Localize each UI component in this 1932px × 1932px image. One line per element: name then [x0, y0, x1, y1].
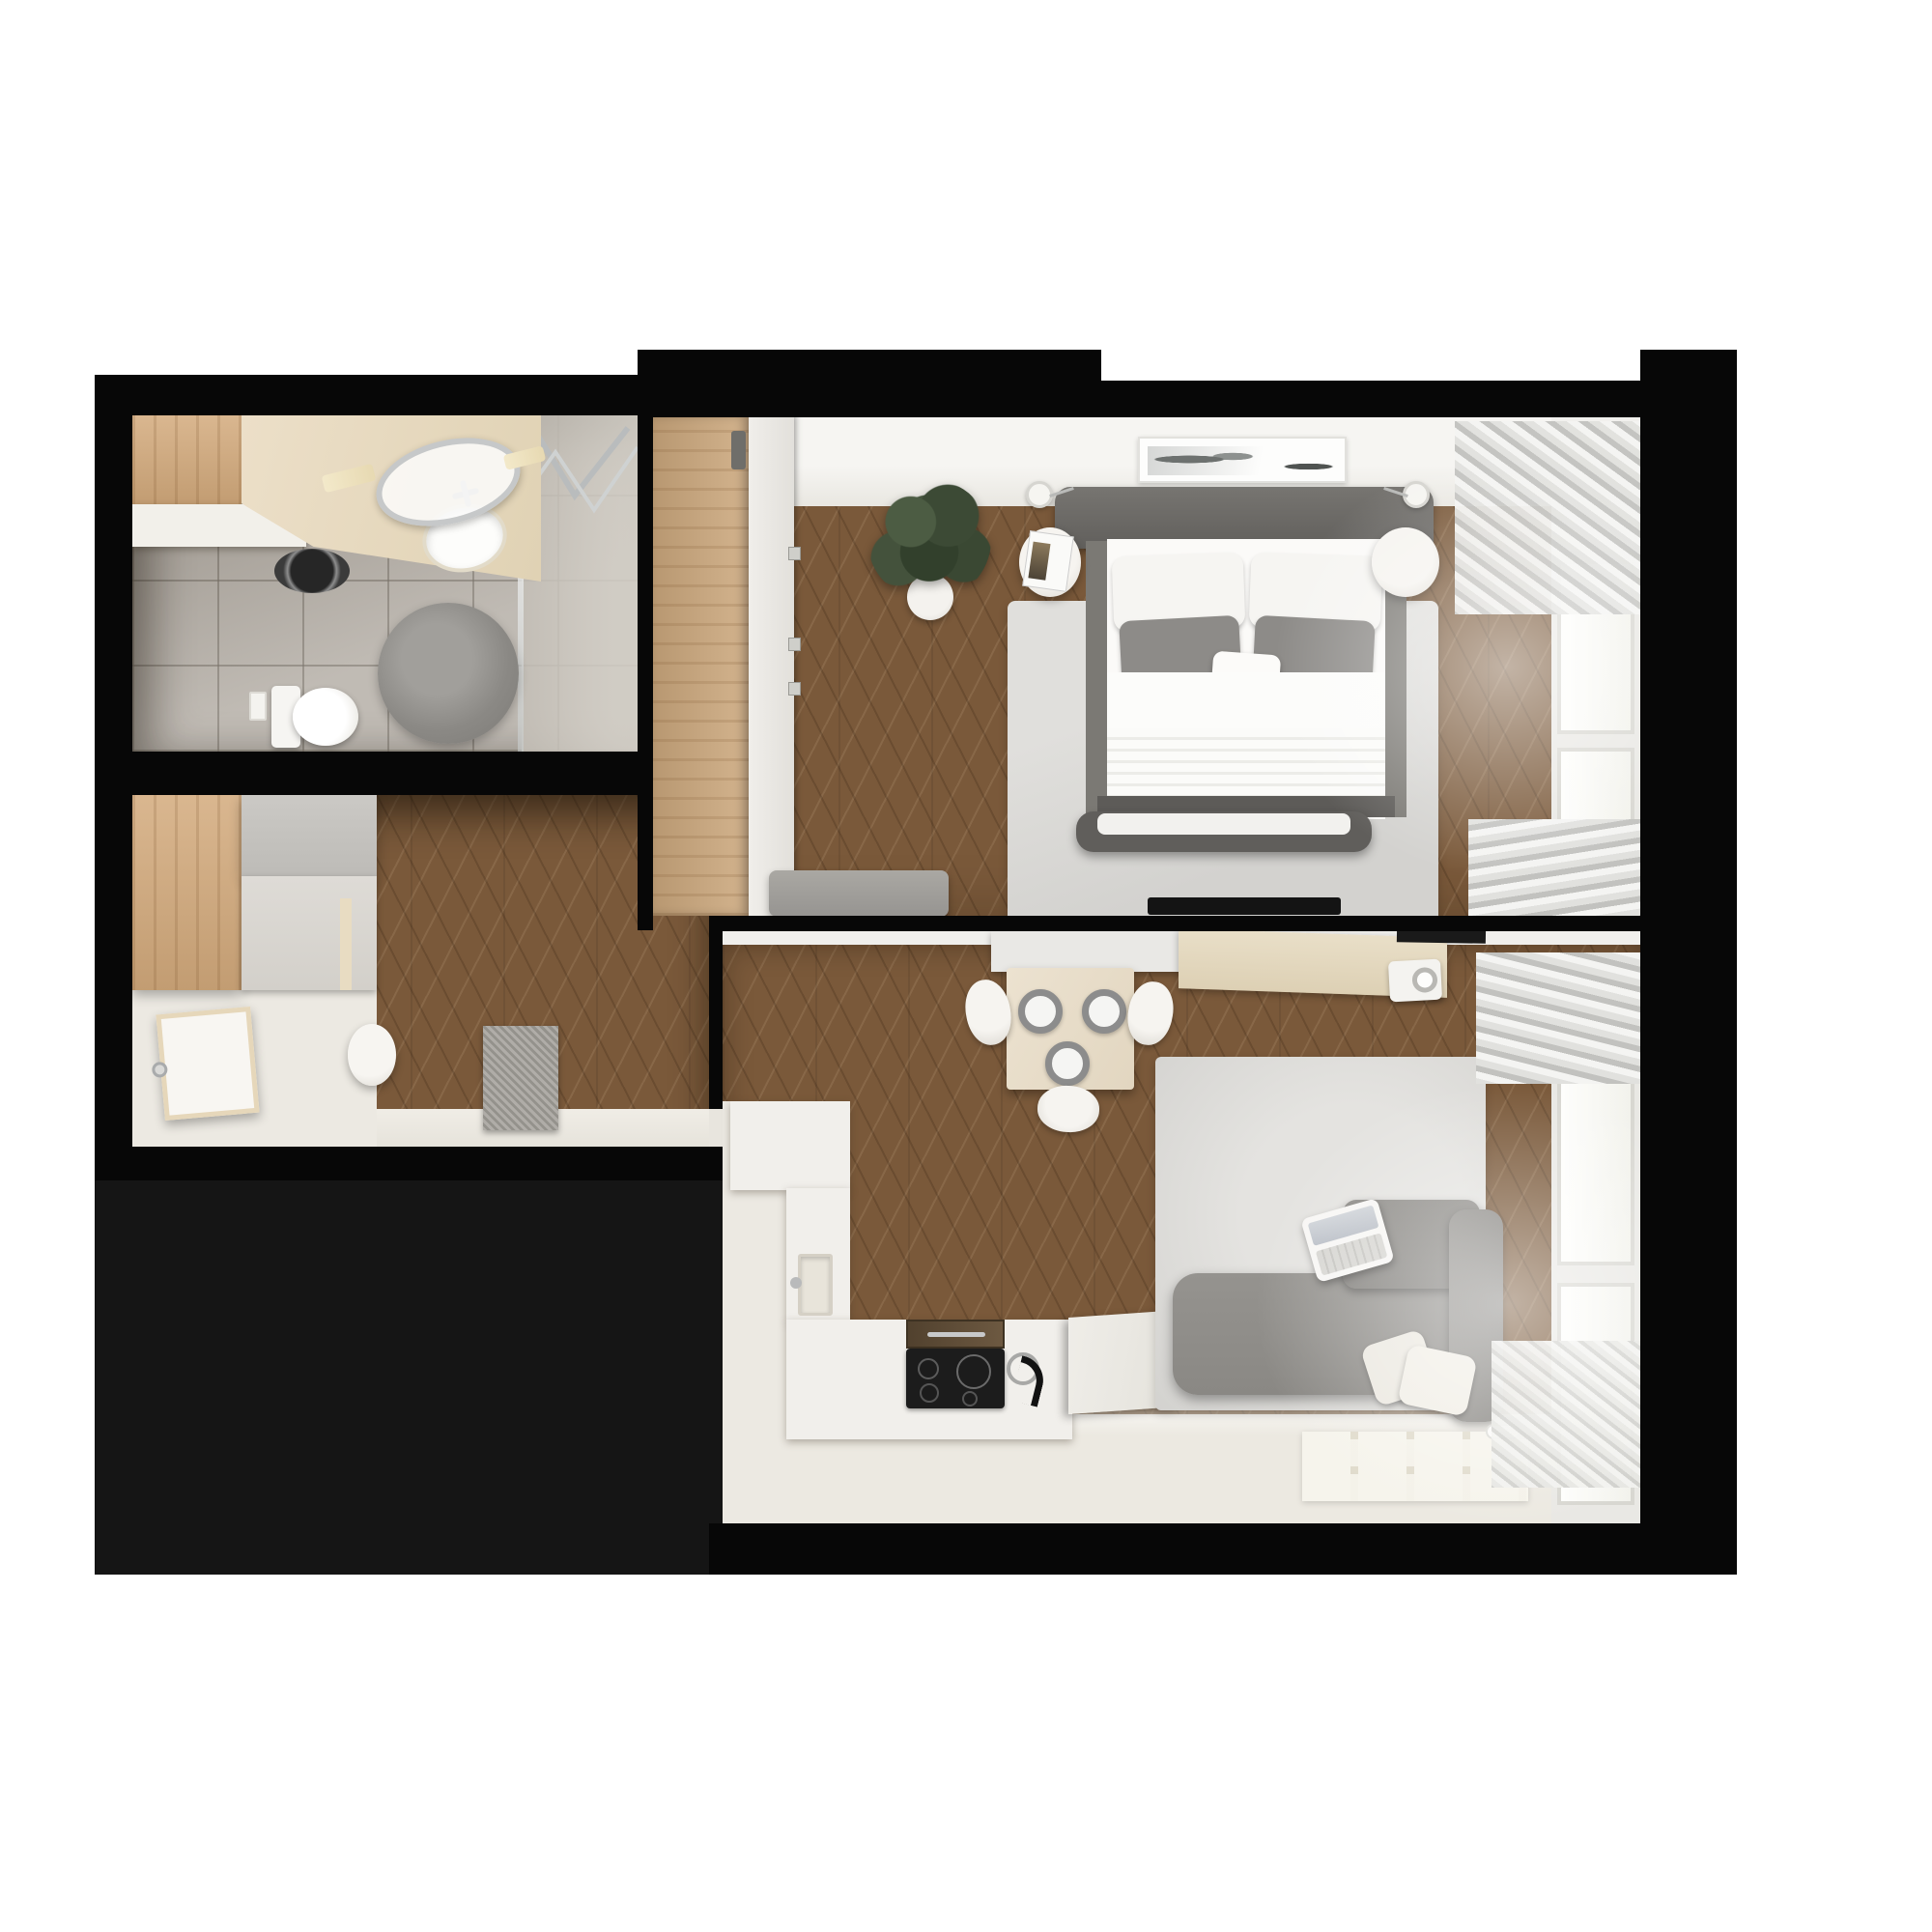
place-setting	[1045, 1041, 1090, 1086]
curtain-folds	[1455, 421, 1640, 614]
wall-top-left-block	[95, 375, 653, 415]
induction-cooktop	[906, 1349, 1005, 1408]
washing-machine-drum	[274, 549, 350, 593]
extractor-handle-icon	[927, 1332, 985, 1337]
kitchen-counter-top-block	[730, 1101, 850, 1190]
flush-plate	[249, 692, 267, 721]
burner-icon	[956, 1354, 991, 1389]
wall-bottom	[709, 1523, 1737, 1575]
living-curtain-top	[1476, 952, 1640, 1084]
wardrobe-hinge	[788, 682, 801, 696]
burner-icon	[962, 1391, 978, 1406]
window-pane	[1557, 1072, 1634, 1265]
knit-throw	[1107, 728, 1385, 802]
place-setting	[1082, 989, 1126, 1034]
hallway-oak-wardrobe	[132, 795, 241, 990]
art-abstract-shape	[1148, 446, 1337, 475]
curtain-folds	[1468, 819, 1640, 916]
wall-living-left	[709, 916, 723, 1109]
kitchen-sink	[798, 1254, 833, 1316]
magazine-photo	[1028, 542, 1050, 581]
toilet-bowl	[293, 688, 358, 746]
closet-edge-trim	[340, 898, 352, 990]
wall-bathroom-bedroom	[638, 375, 653, 930]
wardrobe-handle	[731, 431, 746, 469]
door-handle-icon	[152, 1062, 168, 1078]
nightstand-right	[1372, 527, 1439, 597]
countertop-appliance	[1388, 959, 1442, 1003]
wall-hallway-bottom	[95, 1147, 723, 1180]
bathroom-oak-cabinet	[132, 415, 241, 504]
abstract-wall-art	[1138, 437, 1347, 483]
entrance-door	[156, 1007, 259, 1121]
radiator	[1492, 1341, 1640, 1488]
hallway-pouf	[348, 1024, 396, 1086]
radiator-fins-icon	[1492, 1341, 1640, 1488]
wall-bedroom-living	[723, 916, 1640, 931]
wardrobe-hinge	[788, 638, 801, 651]
upper-counter-white	[991, 931, 1180, 972]
place-setting	[1018, 989, 1063, 1034]
curtain-folds	[1476, 952, 1640, 1084]
wall-right	[1640, 350, 1737, 1575]
bedroom-built-in-wardrobe	[653, 415, 749, 916]
sink-faucet-dot-icon	[790, 1277, 802, 1289]
appliance-door-icon	[1411, 967, 1437, 993]
sliding-closet-upper-door	[241, 795, 377, 876]
bedroom-curtain-top	[1455, 421, 1640, 614]
sliding-closet-lower-door	[241, 876, 377, 990]
floorplan-render: Top-down 3D rendered floor plan of a sma…	[0, 0, 1932, 1932]
doormat	[483, 1026, 558, 1130]
bedroom-wardrobe-door	[749, 415, 794, 916]
extractor-inset	[906, 1320, 1005, 1349]
wall-bathroom-hallway	[95, 752, 653, 795]
magazine	[1022, 530, 1074, 592]
burner-icon	[920, 1383, 939, 1403]
foot-bench-inner	[1097, 813, 1350, 835]
bedroom-tv	[1148, 897, 1341, 915]
burner-icon	[918, 1358, 939, 1379]
round-stone-rug	[378, 603, 519, 744]
bedroom-curtain-bottom	[1468, 819, 1640, 916]
wardrobe-hinge	[788, 547, 801, 560]
bed-frame-rail	[1086, 541, 1107, 817]
outside-dark-zone	[95, 1180, 723, 1575]
wall-top-bedroom-thick	[638, 350, 1101, 417]
media-console	[769, 870, 949, 917]
hall-living-passage	[709, 1109, 723, 1147]
potted-plant-foliage	[867, 479, 991, 601]
